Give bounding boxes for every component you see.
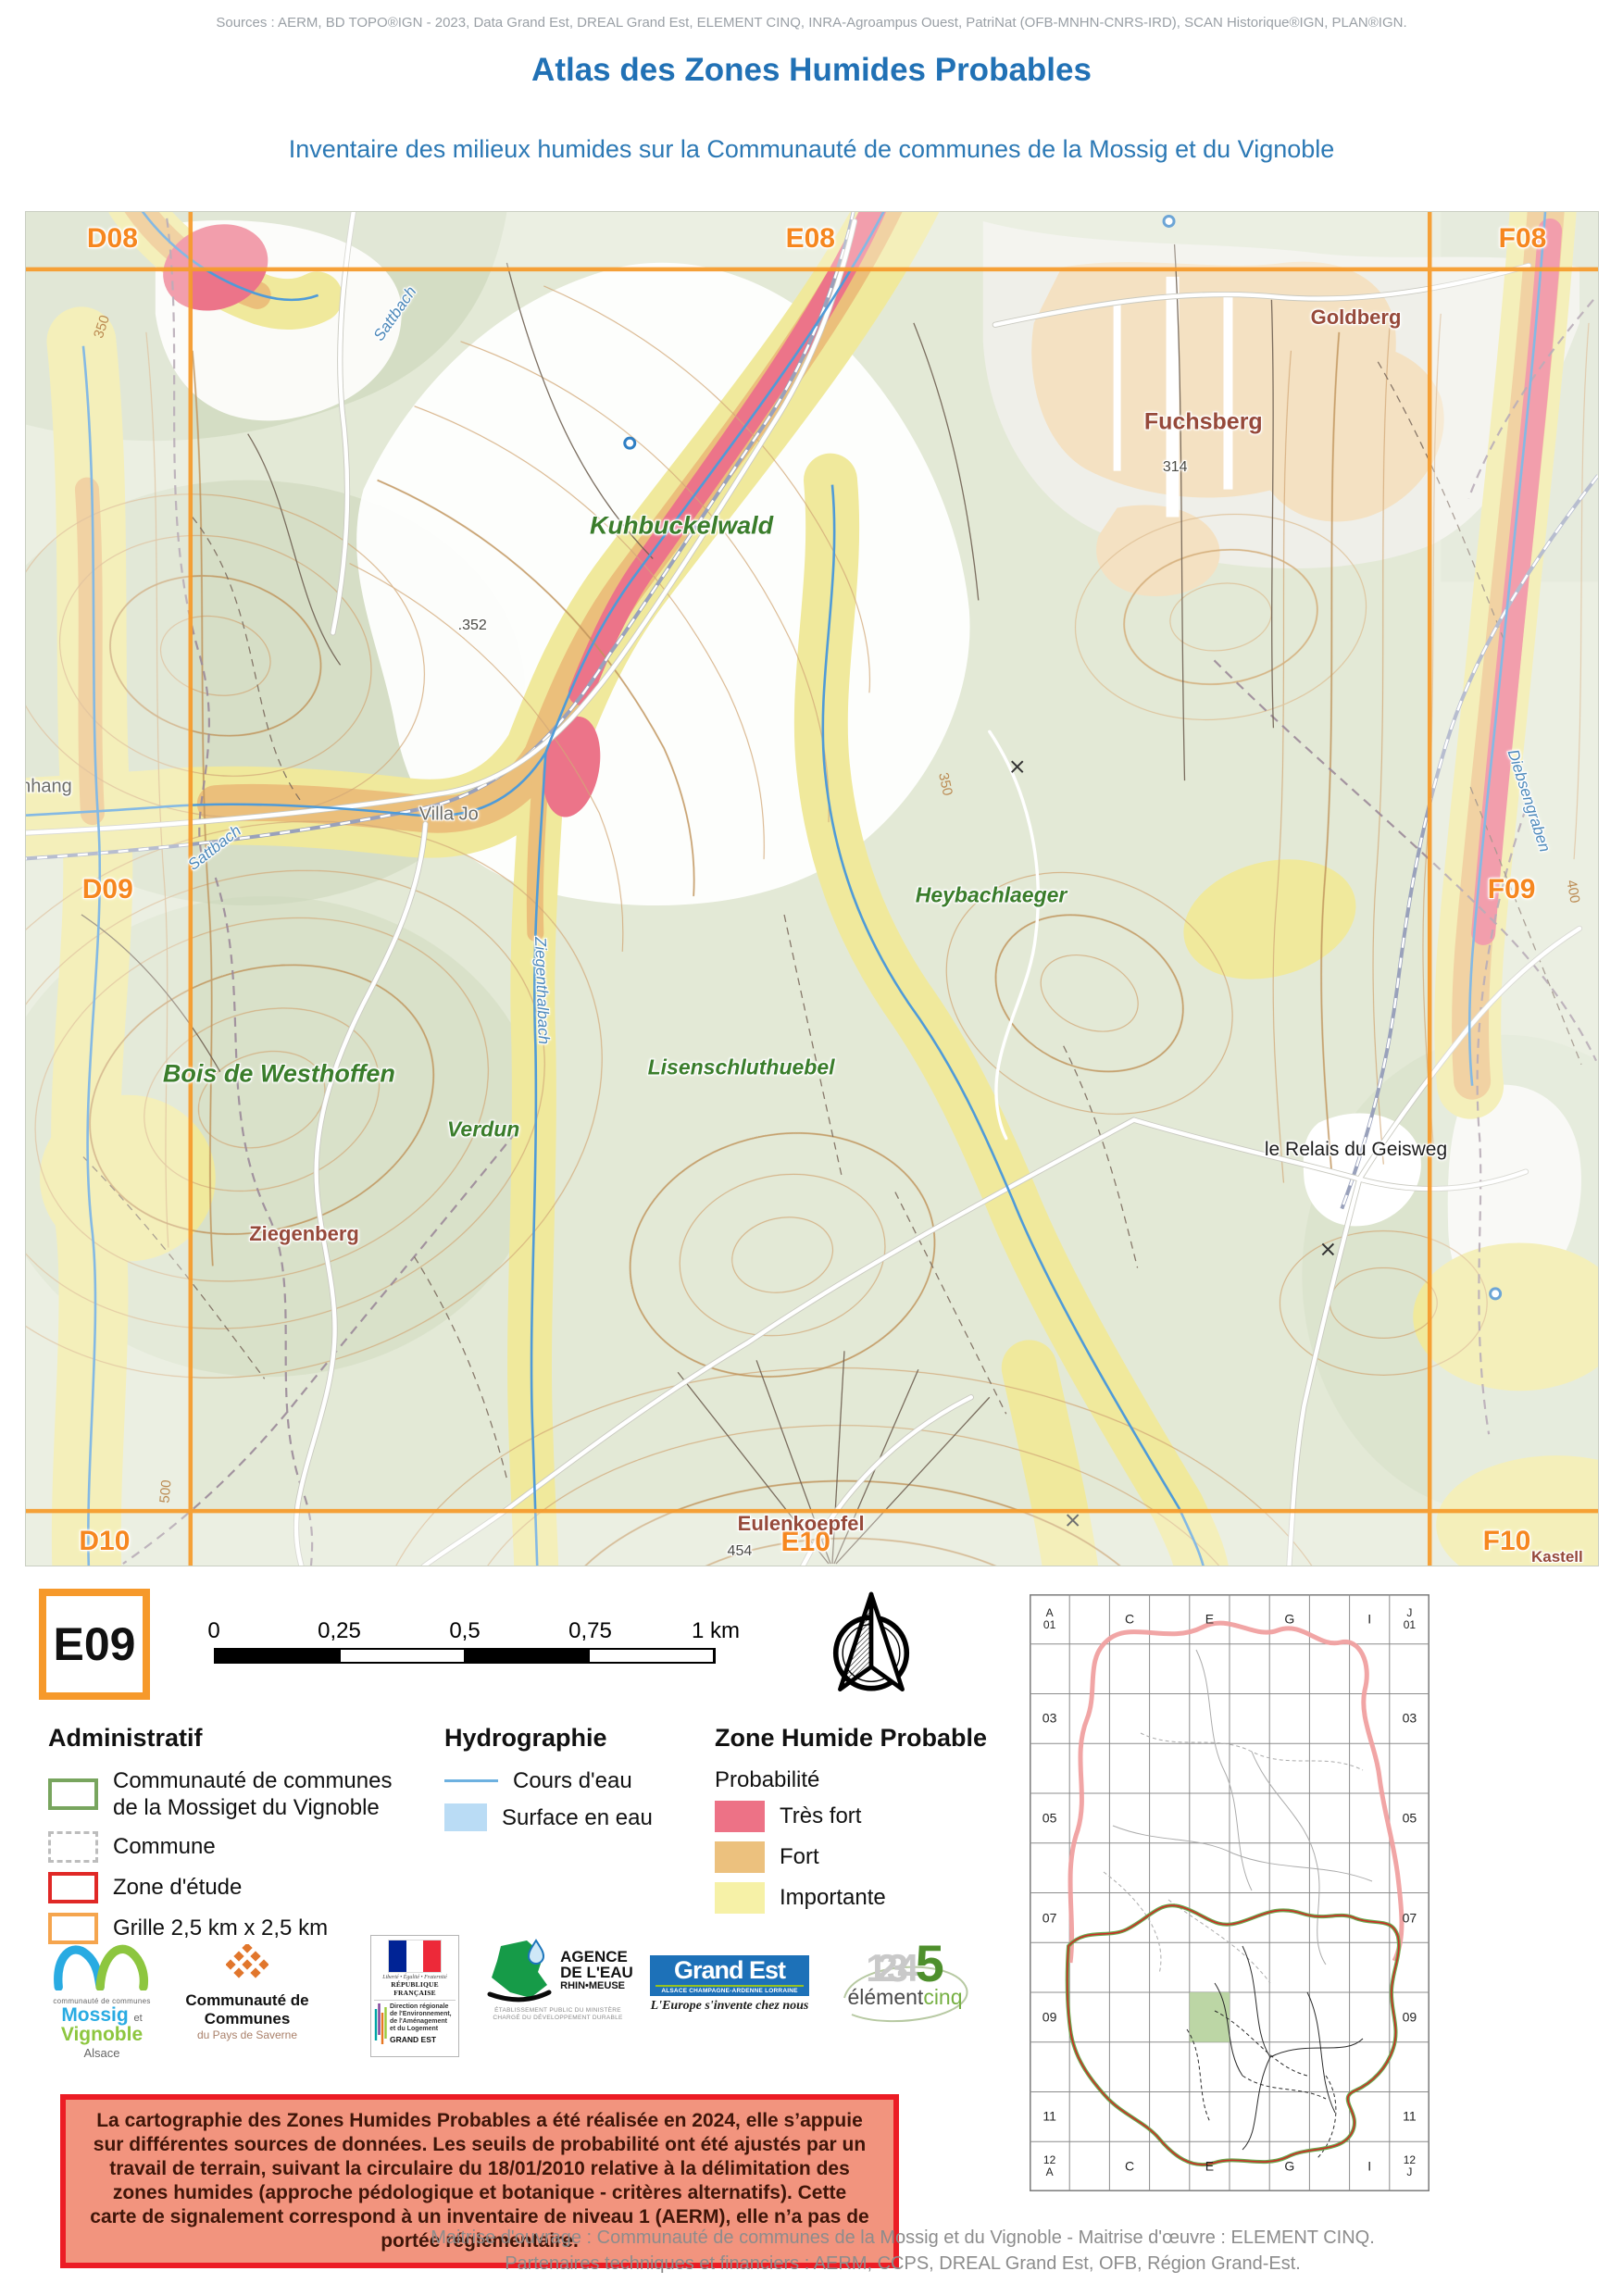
map-label: 350: [935, 771, 955, 797]
element-cinq-word: élément: [847, 1985, 923, 2009]
map-label: Diebsengraben: [1504, 747, 1554, 855]
grid-cell-id-box: E09: [39, 1589, 150, 1700]
page-subtitle: Inventaire des milieux humides sur la Co…: [0, 135, 1623, 164]
legend-swatch: [444, 1803, 487, 1831]
map-label: Kuhlsteinhang: [25, 777, 72, 798]
map-label: 454: [728, 1543, 753, 1560]
saverne-name: Communauté de Communes: [169, 1991, 326, 2028]
minimap-label: E: [1205, 2159, 1214, 2173]
topographic-map: D08E08F08D09F09D10E10F10KuhbuckelwaldHey…: [25, 211, 1599, 1566]
element-cinq-word: cinq: [923, 1985, 962, 2009]
legend-swatch: [48, 1872, 98, 1903]
minimap-label: 07: [1403, 1911, 1417, 1925]
scale-tick-label: 0: [207, 1618, 219, 1644]
map-label: Kastell: [1531, 1548, 1583, 1566]
dreal-line: de l'Environnement,: [390, 2011, 452, 2018]
minimap-label: J 01: [1404, 1607, 1416, 1631]
grid-cell-id: E09: [54, 1617, 136, 1671]
minimap-label: 12 A: [1043, 2154, 1055, 2178]
map-label: Villa Jo: [419, 804, 479, 825]
map-label: Ziegenthalbach: [531, 936, 553, 1044]
minimap-label: 03: [1403, 1711, 1417, 1725]
aerm-subline: CHARGÉ DU DÉVELOPPEMENT DURABLE: [468, 2015, 648, 2022]
vignoble-name: Vignoble: [61, 2024, 143, 2045]
minimap-label: 12 J: [1404, 2154, 1416, 2178]
minimap-label: 09: [1042, 2010, 1057, 2024]
legend-item: Commune: [48, 1831, 446, 1863]
minimap-label: 11: [1403, 2110, 1417, 2124]
map-label: Fuchsberg: [1144, 408, 1263, 435]
grand-est-tagline: L'Europe s'invente chez nous: [650, 1999, 809, 2014]
map-label: 350: [91, 314, 113, 341]
grand-est-name: Grand Est: [655, 1958, 804, 1983]
map-label: Eulenkoepfel: [738, 1512, 865, 1536]
scale-segment: [465, 1650, 589, 1662]
legend-item: Zone d'étude: [48, 1872, 446, 1903]
page-title: Atlas des Zones Humides Probables: [0, 52, 1623, 89]
legend-label: Importante: [780, 1884, 886, 1911]
scale-ticks: 00,250,50,751 km: [214, 1618, 716, 1648]
map-label: Sattbach: [184, 822, 244, 875]
legend-swatch: [715, 1841, 765, 1873]
map-label: Goldberg: [1311, 306, 1402, 330]
dreal-line: de l'Aménagement: [390, 2018, 452, 2026]
logo-pays-de-saverne: Communauté de Communes du Pays de Savern…: [169, 1944, 326, 2041]
aerm-name-line: DE L'EAU: [560, 1965, 633, 1980]
saverne-subname: du Pays de Saverne: [169, 2028, 326, 2041]
minimap-label: G: [1284, 1612, 1294, 1626]
dreal-bars-icon: [374, 2003, 387, 2044]
overview-grid-map: A 01CEGIJ 010303050507070909111112 ACEGI…: [1030, 1594, 1429, 2191]
map-label: Ziegenberg: [249, 1222, 359, 1246]
minimap-label: I: [1367, 2159, 1371, 2173]
logo-mossig-vignoble: communauté de communes Mossig et Vignobl…: [37, 1937, 167, 2060]
dreal-line: Direction régionale: [390, 2003, 452, 2011]
dreal-line: et du Logement: [390, 2026, 452, 2033]
map-label: 314: [1163, 459, 1188, 476]
legend-label: Cours d'eau: [513, 1767, 632, 1794]
footer-line-2: Partenaires techniques et financiers : A…: [185, 2253, 1620, 2275]
french-flag-icon: [388, 1940, 442, 1973]
minimap-label: C: [1125, 1612, 1134, 1626]
legend-swatch: [715, 1801, 765, 1832]
dreal-republique: RÉPUBLIQUE FRANÇAISE: [374, 1980, 456, 1997]
map-label: Lisenschluthuebel: [648, 1054, 835, 1079]
legend-label: Zone d'étude: [113, 1874, 242, 1901]
legend-swatch: [444, 1779, 498, 1782]
minimap-label: A 01: [1043, 1607, 1055, 1631]
legend-item: Communauté de communes de la Mossiget du…: [48, 1767, 446, 1822]
map-label: Kuhbuckelwald: [590, 512, 773, 541]
minimap-label: 03: [1042, 1711, 1057, 1725]
aerm-name-line: RHIN•MEUSE: [560, 1981, 633, 1991]
map-label: F08: [1499, 223, 1547, 255]
legend-swatch: [48, 1831, 98, 1863]
scale-bar: 00,250,50,751 km: [214, 1618, 716, 1664]
legend-label: Surface en eau: [502, 1804, 653, 1831]
logo-region-grand-est: Grand Est ALSACE CHAMPAGNE-ARDENNE LORRA…: [650, 1955, 809, 2014]
logo-agence-eau-rhin-meuse: AGENCE DE L'EAU RHIN•MEUSE ÉTABLISSEMENT…: [468, 1937, 648, 2023]
map-label: le Relais du Geisweg: [1265, 1139, 1447, 1161]
legend-title: Administratif: [48, 1724, 446, 1753]
map-label: E08: [786, 223, 835, 255]
minimap-label: 05: [1042, 1811, 1057, 1825]
element-cinq-five: 5: [916, 1934, 944, 1992]
map-label: F10: [1483, 1526, 1531, 1557]
map-label: 400: [1563, 879, 1582, 905]
legend-swatch: [48, 1778, 98, 1810]
sources-line: Sources : AERM, BD TOPO®IGN - 2023, Data…: [0, 15, 1623, 31]
mossig-et: et: [134, 2013, 143, 2024]
legend-label: Fort: [780, 1843, 819, 1870]
aerm-france-droplet-icon: [482, 1937, 555, 2003]
minimap-label: I: [1367, 1612, 1371, 1626]
minimap-label: 09: [1403, 2010, 1417, 2024]
scale-tick-label: 1 km: [692, 1618, 740, 1644]
map-label: F09: [1488, 874, 1536, 905]
minimap-label: 07: [1042, 1911, 1057, 1925]
scale-tick-label: 0,25: [318, 1618, 361, 1644]
map-label: Bois de Westhoffen: [163, 1060, 395, 1089]
grand-est-strip: ALSACE CHAMPAGNE-ARDENNE LORRAINE: [655, 1985, 804, 1994]
overview-grid-svg: [1030, 1594, 1429, 2191]
footer-line-1: Maitrise d'ouvrage : Communauté de commu…: [185, 2227, 1620, 2249]
legend-label: Commune: [113, 1833, 216, 1860]
minimap-label: 05: [1403, 1811, 1417, 1825]
scale-segment: [340, 1650, 466, 1662]
map-label: D08: [87, 223, 138, 255]
map-label: D10: [79, 1526, 130, 1557]
minimap-label: 11: [1042, 2110, 1056, 2124]
map-label: Heybachlaeger: [916, 883, 1067, 908]
legend-label: Communauté de communes de la Mossiget du…: [113, 1767, 392, 1822]
scale-bar-segments: [214, 1648, 716, 1664]
scale-segment: [589, 1650, 715, 1662]
saverne-diamonds-icon: [226, 1944, 268, 1983]
dreal-region: GRAND EST: [390, 2036, 452, 2045]
scale-tick-label: 0,5: [449, 1618, 480, 1644]
minimap-label: G: [1284, 2159, 1294, 2173]
map-label: Sattbach: [370, 282, 421, 343]
map-labels: D08E08F08D09F09D10E10F10KuhbuckelwaldHey…: [26, 212, 1598, 1566]
logo-element-cinq: 12345 élémentcinq: [833, 1933, 977, 2035]
legend-items: Communauté de communes de la Mossiget du…: [48, 1767, 446, 1944]
aerm-name-line: AGENCE: [560, 1949, 633, 1965]
map-label: Verdun: [447, 1117, 519, 1142]
legend-swatch: [715, 1882, 765, 1914]
legend-administratif: Administratif Communauté de communes de …: [48, 1724, 446, 1953]
map-label: D09: [82, 874, 133, 905]
north-arrow-icon: [819, 1587, 923, 1705]
map-label: 500: [157, 1479, 175, 1503]
map-label: .352: [458, 618, 487, 634]
mossig-region: Alsace: [37, 2046, 167, 2060]
mossig-m-icon: [51, 1937, 153, 1990]
scale-tick-label: 0,75: [568, 1618, 612, 1644]
element-cinq-digits: 1234: [866, 1946, 907, 1990]
minimap-label: E: [1205, 1612, 1214, 1626]
legend-label: Très fort: [780, 1803, 861, 1829]
minimap-label: C: [1125, 2159, 1134, 2173]
scale-segment: [216, 1650, 340, 1662]
logo-dreal-grand-est: Liberté • Égalité • Fraternité RÉPUBLIQU…: [370, 1935, 459, 2057]
mossig-name: Mossig: [61, 2004, 128, 2026]
minimap-current-cell: [1190, 1992, 1230, 2042]
